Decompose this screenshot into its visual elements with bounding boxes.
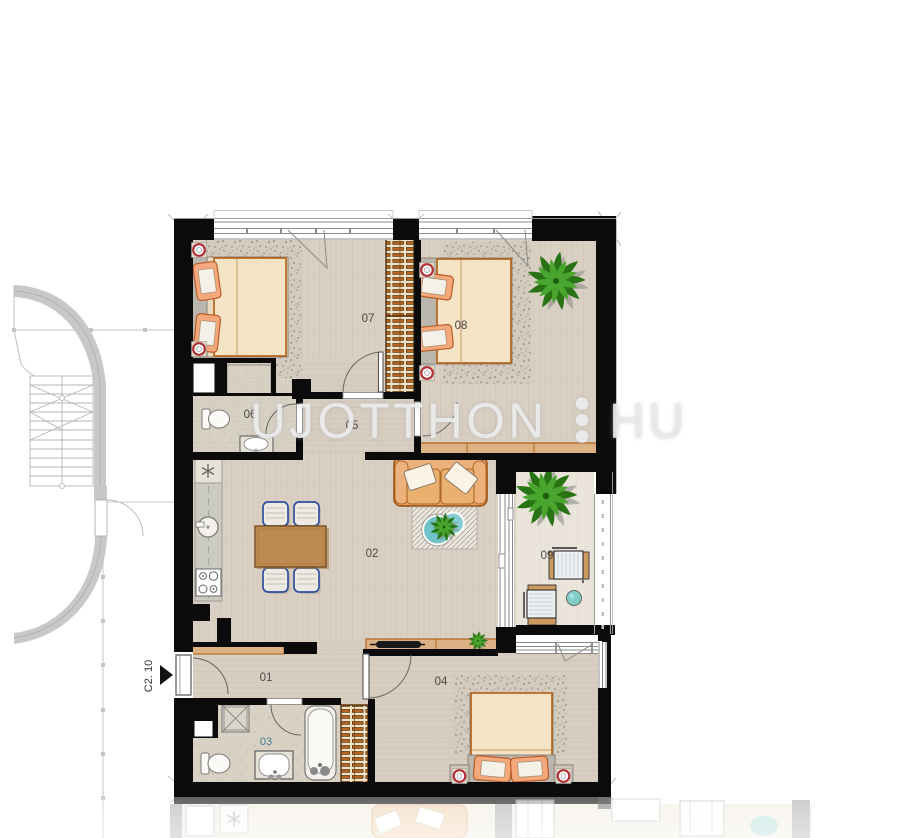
svg-text:HU: HU — [609, 394, 688, 449]
svg-text:04: 04 — [435, 676, 448, 688]
svg-text:UJOTTHON: UJOTTHON — [250, 394, 547, 449]
svg-text:09: 09 — [541, 550, 554, 562]
svg-text:08: 08 — [455, 320, 468, 332]
svg-text:02: 02 — [366, 548, 379, 560]
svg-text:01: 01 — [260, 672, 273, 684]
svg-text:03: 03 — [260, 736, 272, 748]
svg-text:C2. 10: C2. 10 — [143, 660, 155, 692]
svg-text:07: 07 — [362, 313, 375, 325]
